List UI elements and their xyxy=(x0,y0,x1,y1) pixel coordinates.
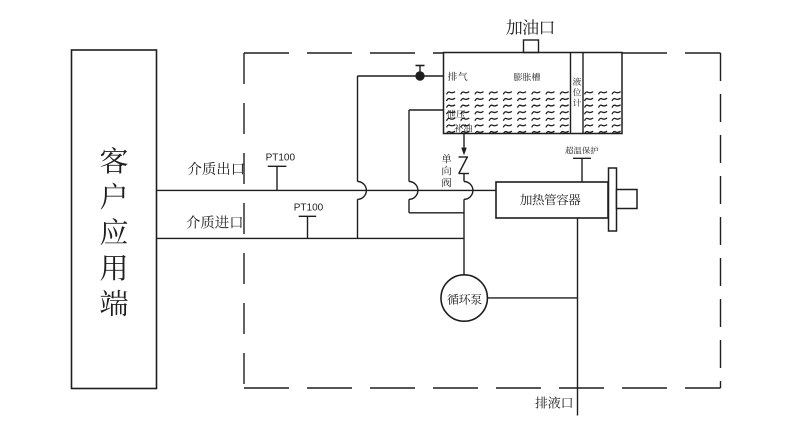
svg-text:PT100: PT100 xyxy=(294,202,324,213)
svg-text:PT100: PT100 xyxy=(266,152,296,163)
